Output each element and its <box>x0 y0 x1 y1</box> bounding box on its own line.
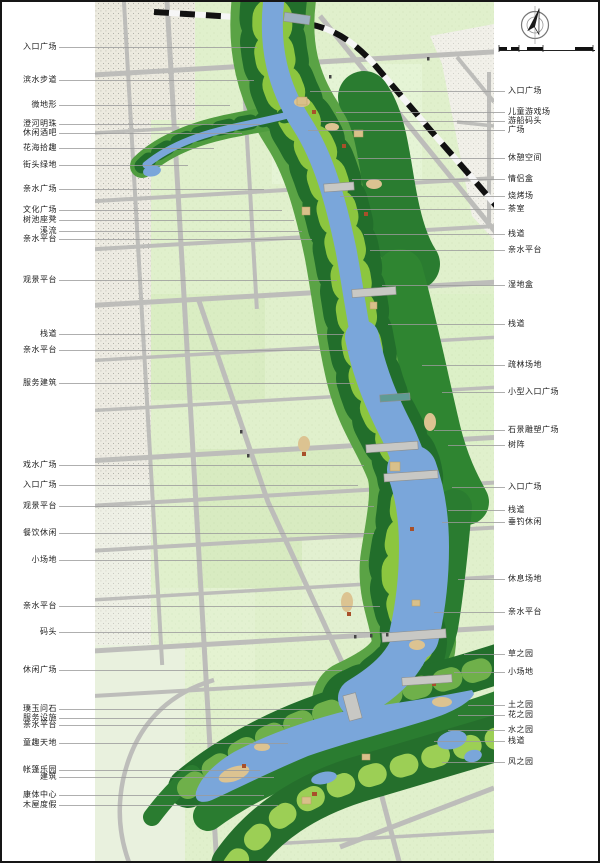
scale-bar <box>499 45 595 52</box>
masterplan-map <box>2 2 600 863</box>
north-arrow-icon <box>522 6 549 44</box>
landscape-masterplan-page: 入口广场滨水步道微地形澄河明珠休闲酒吧花海拾趣街头绿地亲水广场文化广场树池座凳溪… <box>0 0 600 863</box>
